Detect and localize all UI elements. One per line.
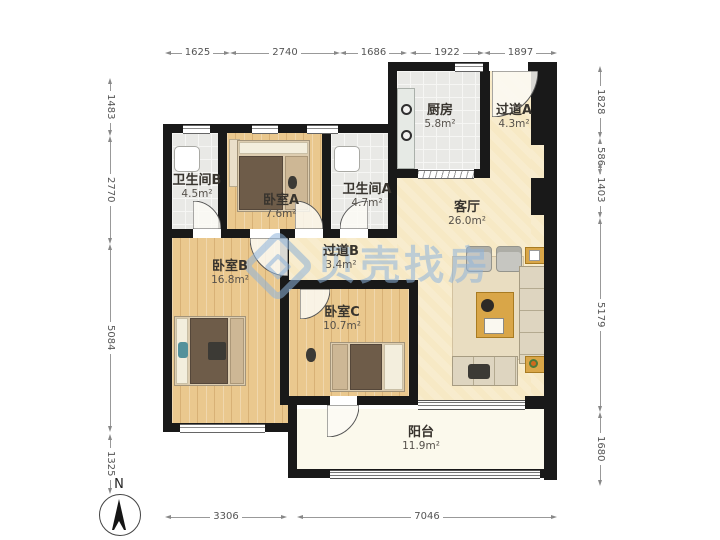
floor-plan: 卫生间B 4.5m² 卧室A 7.6m² 卫生间A 4.7m² 厨房 5.8m²… <box>0 0 720 540</box>
room-name: 卧室B <box>211 260 249 274</box>
room-label-bedroom-a: 卧室A 7.6m² <box>263 194 299 221</box>
dimension-left-0: 1483 <box>102 78 118 136</box>
bed-remote <box>306 348 316 362</box>
wall <box>289 280 418 289</box>
room-name: 卫生间B <box>173 174 222 188</box>
stove-burner <box>401 104 412 115</box>
wall <box>288 229 295 238</box>
accent-pillow <box>178 342 188 358</box>
dimension-left-2: 5084 <box>102 244 118 432</box>
wall <box>388 169 418 178</box>
room-label-bedroom-b: 卧室B 16.8m² <box>211 260 249 287</box>
room-area: 11.9m² <box>402 440 440 453</box>
kitchen-counter <box>397 88 415 169</box>
room-name: 过道A <box>496 104 532 118</box>
window <box>455 63 483 72</box>
floor-plan-image: 卫生间B 4.5m² 卧室A 7.6m² 卫生间A 4.7m² 厨房 5.8m²… <box>0 0 720 540</box>
armchair <box>466 246 492 272</box>
room-name: 卧室C <box>323 306 361 320</box>
floor-notch <box>531 145 544 178</box>
room-area: 4.5m² <box>173 188 222 201</box>
dimension-right-1: 586 <box>592 138 608 162</box>
room-area: 7.6m² <box>263 208 299 221</box>
wall <box>163 124 172 432</box>
bed-duvet <box>350 344 382 390</box>
room-name: 厨房 <box>424 104 455 118</box>
window-bedroom-b <box>180 424 265 433</box>
wall <box>322 133 331 229</box>
wall <box>544 62 557 480</box>
wall <box>288 405 297 478</box>
wall <box>172 229 193 238</box>
balcony-door-arc <box>327 405 359 437</box>
bedroom-b-door-arc <box>250 238 288 276</box>
room-label-bathroom-b: 卫生间B 4.5m² <box>173 174 222 201</box>
room-area: 3.4m² <box>323 259 359 272</box>
bedside-tray <box>208 342 226 360</box>
sliding-door <box>418 400 525 410</box>
dimension-right-2: 1403 <box>592 162 608 218</box>
plant <box>529 359 538 368</box>
dimension-top-2: 1686 <box>340 46 407 60</box>
room-label-kitchen: 厨房 5.8m² <box>424 104 455 131</box>
wall <box>388 62 397 238</box>
room-name: 客厅 <box>448 201 486 215</box>
room-area: 4.3m² <box>496 118 532 131</box>
dimension-right-3: 5179 <box>592 218 608 412</box>
bedroom-a-door-arc <box>295 201 323 229</box>
room-area: 26.0m² <box>448 215 486 228</box>
room-name: 卧室A <box>263 194 299 208</box>
bed-pillows <box>384 344 403 390</box>
wall <box>525 396 557 409</box>
wall <box>221 229 250 238</box>
window <box>183 125 210 134</box>
room-name: 卫生间A <box>342 183 391 197</box>
dimension-top-4: 1897 <box>484 46 557 60</box>
dimension-bottom-0: 3306 <box>165 510 287 524</box>
bathroom-sink <box>334 146 360 172</box>
bathroom-sink <box>174 146 200 172</box>
wall <box>368 229 397 238</box>
room-label-living-room: 客厅 26.0m² <box>448 201 486 228</box>
room-label-hallway-a: 过道A 4.3m² <box>496 104 532 131</box>
bed-blanket <box>230 318 244 384</box>
bed-blanket <box>332 344 348 390</box>
room-label-bedroom-c: 卧室C 10.7m² <box>323 306 361 333</box>
bed-remote <box>288 176 297 189</box>
wall <box>288 396 330 405</box>
wall <box>480 71 490 178</box>
room-label-bathroom-a: 卫生间A 4.7m² <box>342 183 391 210</box>
dimension-left-1: 2770 <box>102 136 118 244</box>
book <box>529 250 540 261</box>
room-name: 过道B <box>323 245 359 259</box>
dimension-bottom-1: 7046 <box>297 510 557 524</box>
kettle <box>481 299 494 312</box>
room-area: 5.8m² <box>424 118 455 131</box>
window <box>307 125 338 134</box>
wall <box>357 396 418 405</box>
room-label-hallway-b: 过道B 3.4m² <box>323 245 359 272</box>
bed-pillows <box>239 142 308 154</box>
dimension-top-0: 1625 <box>165 46 230 60</box>
room-area: 16.8m² <box>211 274 249 287</box>
wall <box>323 229 340 238</box>
dimension-top-1: 2740 <box>230 46 340 60</box>
dimension-left-3: 1325 <box>102 434 118 494</box>
room-label-balcony: 阳台 11.9m² <box>402 426 440 453</box>
room-name: 阳台 <box>402 426 440 440</box>
bathroom-b-door-arc <box>193 201 221 229</box>
sofa <box>519 266 545 364</box>
wall <box>409 280 418 405</box>
dimension-right-4: 1680 <box>592 412 608 486</box>
room-area: 10.7m² <box>323 320 361 333</box>
window-balcony <box>330 470 540 479</box>
bench-item <box>468 364 490 379</box>
kitchen-folding-door <box>418 170 474 179</box>
dimension-top-3: 1922 <box>410 46 484 60</box>
window <box>252 125 278 134</box>
wall <box>531 178 544 215</box>
dimension-right-0: 1828 <box>592 66 608 138</box>
room-area: 4.7m² <box>342 197 391 210</box>
compass-needle-notch <box>114 521 124 530</box>
table-tray <box>484 318 504 334</box>
wall <box>474 169 490 178</box>
stove-burner <box>401 130 412 141</box>
